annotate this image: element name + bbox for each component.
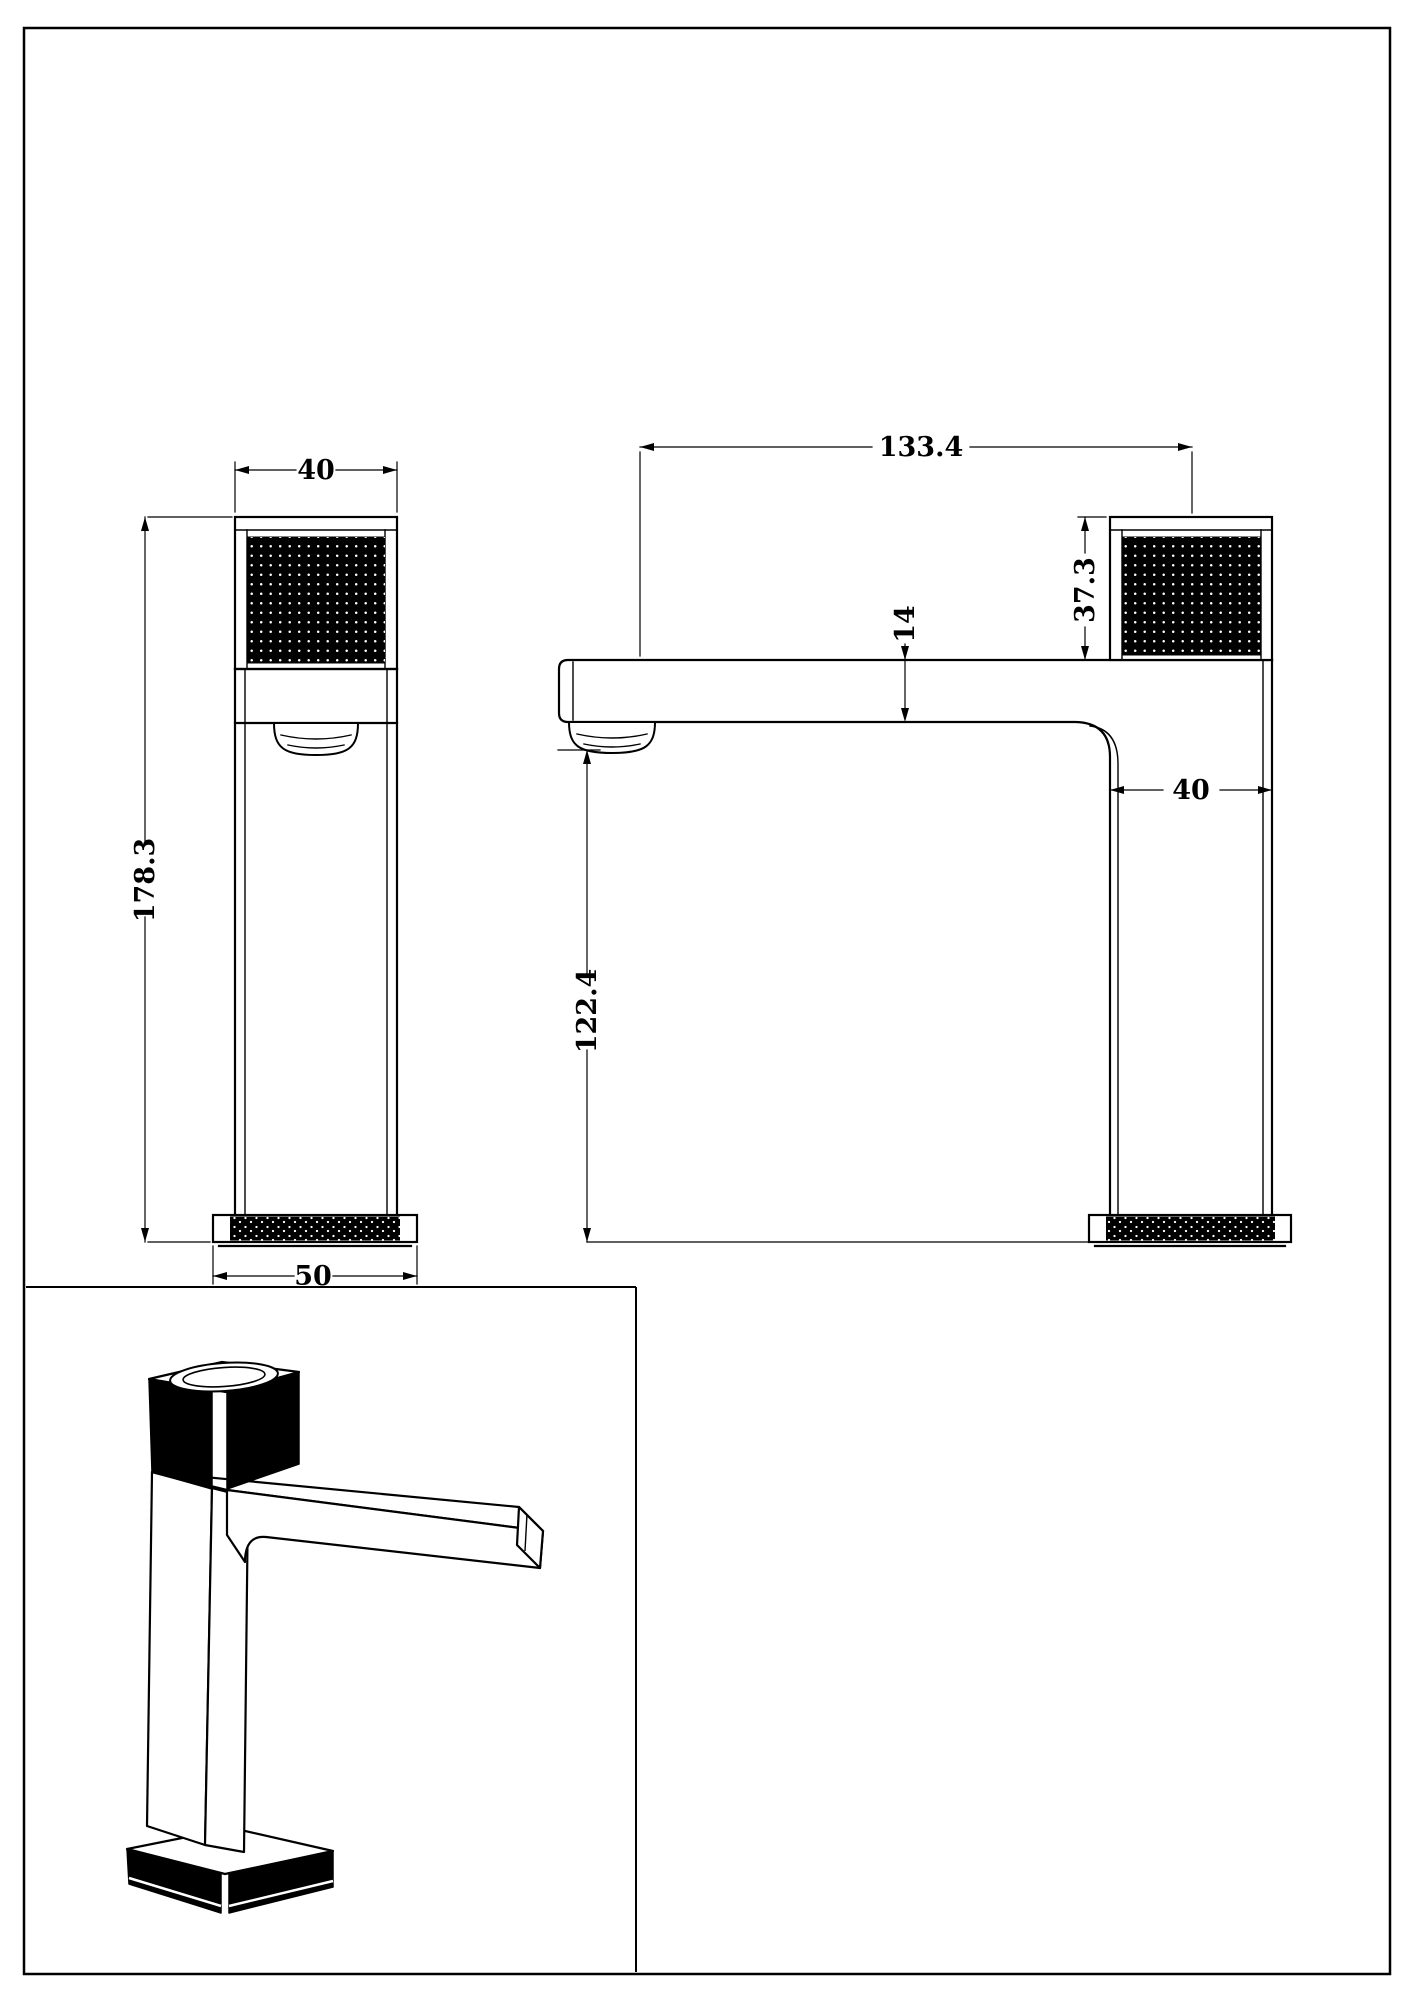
arrow-left-icon [213, 1272, 227, 1280]
front-dim-top-width: 40 [235, 455, 397, 512]
side-view: 133.4 37.3 14 122.4 [558, 432, 1291, 1246]
side-dim-outlet-height: 122.4 [558, 750, 603, 1242]
front-view: 40 178.3 50 [130, 455, 417, 1292]
arrow-left-icon [1110, 786, 1124, 794]
side-handle-knurl-dots [1122, 537, 1261, 655]
technical-drawing-canvas: 40 178.3 50 [0, 0, 1414, 2000]
arrow-right-icon [1258, 786, 1272, 794]
front-handle-knurl-dots [247, 537, 385, 663]
arrow-down-icon [901, 646, 909, 660]
arrow-right-icon [1178, 443, 1192, 451]
arrow-up-icon [1081, 517, 1089, 531]
front-base-knurl-dots [230, 1217, 400, 1241]
front-dim-overall-height: 178.3 [130, 517, 232, 1242]
arrow-right-icon [403, 1272, 417, 1280]
arrow-left-icon [640, 443, 654, 451]
side-dim-spout-thickness-label: 14 [890, 605, 921, 643]
arrow-left-icon [235, 466, 249, 474]
iso-body-front-left-face [147, 1472, 212, 1845]
side-dim-body-depth-label: 40 [1172, 775, 1210, 806]
side-body-left-inner-wall [1090, 726, 1118, 1215]
side-dim-handle-height: 37.3 [1070, 517, 1106, 660]
side-dim-handle-height-label: 37.3 [1070, 557, 1101, 623]
arrow-down-icon [901, 708, 909, 722]
side-dim-reach-label: 133.4 [879, 432, 964, 463]
arrow-down-icon [1081, 646, 1089, 660]
arrow-up-icon [141, 517, 149, 531]
isometric-view [26, 1287, 636, 1972]
arrow-right-icon [383, 466, 397, 474]
arrow-down-icon [141, 1228, 149, 1242]
side-dim-outlet-height-label: 122.4 [572, 969, 603, 1054]
front-dim-base-width: 50 [213, 1246, 417, 1292]
iso-handle-left-face [149, 1379, 212, 1489]
side-base-knurl-dots [1106, 1217, 1275, 1241]
side-dim-body-depth: 40 [1110, 775, 1272, 806]
arrow-down-icon [583, 1228, 591, 1242]
drawing-sheet: 40 178.3 50 [0, 0, 1414, 2000]
front-dim-overall-height-label: 178.3 [130, 838, 161, 923]
side-dim-spout-thickness: 14 [890, 605, 921, 722]
front-dim-top-width-label: 40 [297, 455, 335, 486]
side-spout-body-contour [559, 660, 1272, 1215]
